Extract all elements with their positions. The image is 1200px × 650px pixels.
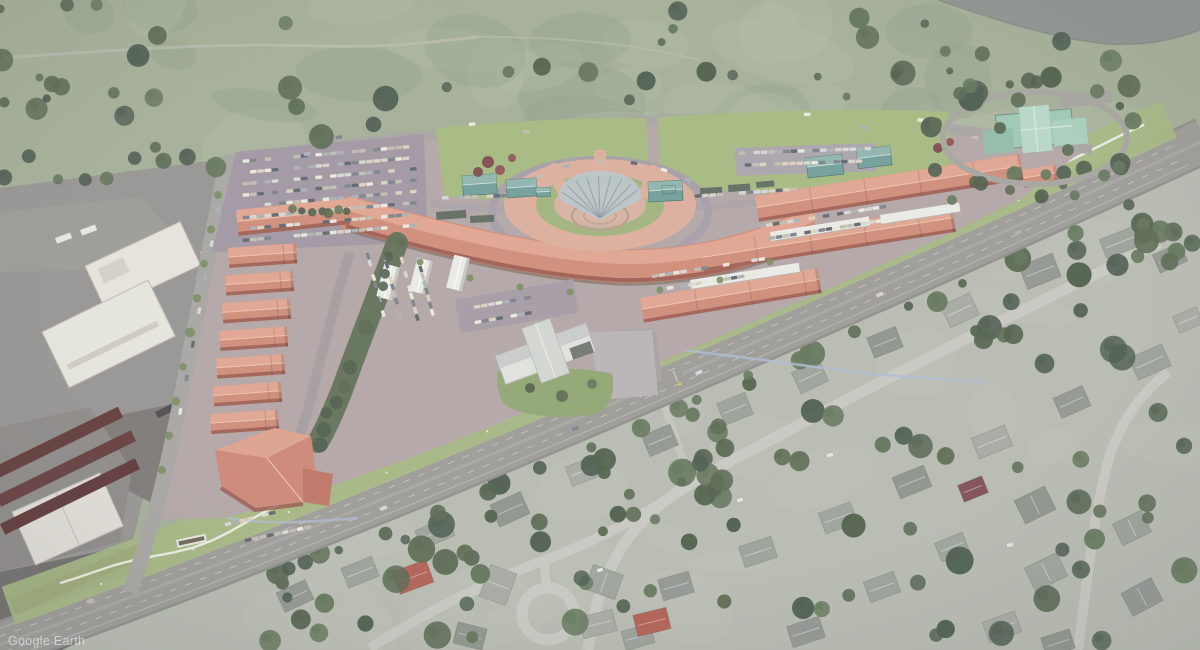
vignette <box>0 0 1200 650</box>
aerial-scene: Google Earth <box>0 0 1200 650</box>
google-earth-watermark: Google Earth <box>8 634 85 648</box>
aerial-development-rendering: Google Earth <box>0 0 1200 650</box>
